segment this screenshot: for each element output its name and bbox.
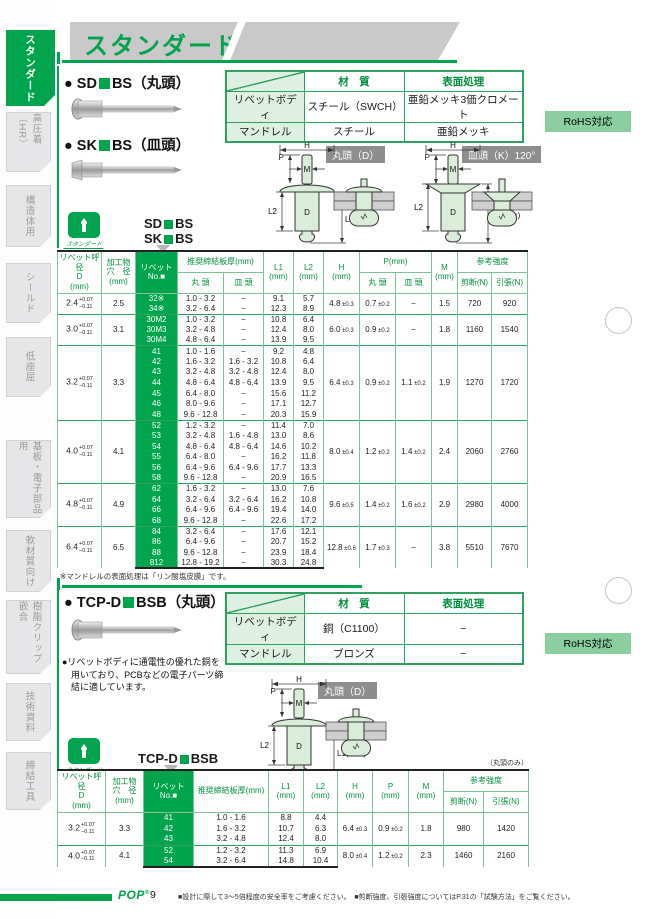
material-table-2: 材 質 表面処理 リベットボディ 銅（C1100） − マンドレル ブロンズ − [225, 592, 524, 665]
surface-col-header: 表面処理 [404, 593, 523, 613]
rivet-series-callout: SDBS SKBS [144, 217, 193, 247]
svg-text:D: D [450, 208, 456, 217]
page-title: スタンダード [84, 26, 240, 61]
spec-row: 6.4+0.07−0.116.5843.2 - 6.4−17.612.112.8… [58, 526, 528, 537]
rivet-photo-sd [68, 97, 186, 121]
svg-text:L2: L2 [414, 203, 423, 212]
rohs-badge: RoHS対応 [545, 111, 631, 132]
svg-text:D: D [296, 742, 302, 751]
rohs-badge: RoHS対応 [545, 633, 631, 654]
mandrel-note: ※マンドレルの表面処理は「リン酸塩皮膜」です。 [60, 571, 231, 582]
spec-row: 3.2+0.07−0.113.3411.0 - 1.68.84.46.4 ±0.… [58, 812, 529, 823]
footer-bar [0, 894, 112, 901]
svg-text:M: M [304, 165, 311, 174]
product-title-sd-pre: ● SD [64, 76, 97, 92]
svg-text:M: M [450, 165, 457, 174]
section1-rule [62, 60, 457, 63]
section1-vline [57, 66, 59, 248]
size-placeholder-square [164, 220, 173, 229]
svg-text:M: M [296, 699, 303, 708]
surface-col-header: 表面処理 [404, 71, 523, 91]
rivet-photo-sk [68, 158, 186, 182]
round-only-note: （丸頭のみ） [440, 758, 528, 768]
catalog-page: スタンダード高圧着（HR）構造体用シールド低座屈基板・電子部品用軟材質向け樹脂ク… [0, 0, 650, 919]
standard-stamp: スタンダード [64, 212, 104, 249]
spec-row: 4.8+0.07−0.114.9621.6 - 3.2−13.07.69.6 ±… [58, 484, 528, 495]
product-title-sd-post: BS（丸頭） [112, 76, 190, 92]
footer-notes: ■設計に際して3～5倍程度の安全率をご考慮ください。 ■剪断強度、引張強度につい… [178, 892, 575, 902]
svg-text:H: H [304, 142, 310, 150]
svg-text:P: P [425, 153, 430, 162]
sidebar-tab-2[interactable]: 構造体用 [6, 185, 51, 247]
svg-text:H: H [450, 142, 456, 150]
material-row: リベットボディ 銅（C1100） − [226, 613, 523, 644]
size-placeholder-square [180, 755, 189, 764]
spec-row: 3.0+0.07−0.113.130M21.0 - 3.2−10.86.46.0… [58, 314, 528, 325]
diagonal-cell [226, 593, 304, 613]
svg-text:L2: L2 [268, 207, 277, 216]
svg-text:L2: L2 [260, 741, 269, 750]
svg-text:D: D [304, 208, 310, 217]
sidebar-tab-8[interactable]: 技術資料 [6, 683, 51, 741]
diagonal-cell [226, 71, 304, 91]
product-title-sk-post: BS（皿頭） [112, 138, 190, 154]
spec-row: 2.4+0.07−0.112.532※1.0 - 3.2−9.15.74.8 ±… [58, 293, 528, 304]
rule-cap [57, 52, 60, 64]
installed-rivet-round [332, 174, 396, 232]
punch-hole [605, 577, 632, 604]
sidebar-tab-5[interactable]: 基板・電子部品用 [6, 440, 51, 518]
table-header-row: リベット呼径D(mm)加工物穴 径(mm)リベットNo.■推奨締結板厚(mm)L… [58, 251, 528, 272]
sidebar-tab-9[interactable]: 締結工具 [6, 752, 51, 810]
product-title-sk-pre: ● SK [64, 138, 97, 154]
page-number: 9 [150, 889, 156, 901]
svg-text:P: P [271, 687, 276, 696]
size-placeholder-square [164, 235, 173, 244]
sidebar-tab-3[interactable]: シールド [6, 263, 51, 323]
svg-text:H: H [296, 676, 302, 684]
spec-row: 3.2+0.07−0.113.3411.0 - 1.6−9.24.86.4 ±0… [58, 346, 528, 357]
standard-stamp-icon [68, 738, 100, 764]
installed-rivet-flat [470, 174, 534, 232]
material-col-header: 材 質 [304, 71, 404, 91]
product-title-sd: ● SDBS（丸頭） [64, 72, 190, 93]
sidebar-tab-7[interactable]: 樹脂クリップ嵌合 [6, 600, 51, 674]
sidebar: スタンダード高圧着（HR）構造体用シールド低座屈基板・電子部品用軟材質向け樹脂ク… [0, 0, 57, 919]
rivet-photo-tcp [68, 618, 186, 642]
standard-stamp-icon [68, 212, 100, 238]
sidebar-tab-0[interactable]: スタンダード [6, 30, 55, 106]
punch-hole [605, 307, 632, 334]
spec-row: 4.0+0.07−0.114.1521.2 - 3.211.36.98.0 ±0… [58, 845, 529, 856]
header-banner: スタンダード [70, 22, 460, 60]
svg-text:P: P [279, 153, 284, 162]
material-row: マンドレル ブロンズ − [226, 644, 523, 664]
sidebar-tab-4[interactable]: 低座屈 [6, 337, 51, 397]
product-description: ●リベットボディに通電性の優れた銅を 用いており、PCBなどの電子パーツ締 結に… [62, 656, 252, 694]
section2-vline [57, 590, 59, 780]
material-row: マンドレル スチール 亜鉛メッキ [226, 122, 523, 142]
spec-table-1: リベット呼径D(mm)加工物穴 径(mm)リベットNo.■推奨締結板厚(mm)L… [57, 250, 528, 569]
size-placeholder-square [99, 140, 110, 151]
rule-cap [57, 578, 60, 590]
product-title-tcp: ● TCP-DBSB（丸頭） [64, 591, 225, 612]
product-title-sk: ● SKBS（皿頭） [64, 134, 190, 155]
material-row: リベットボディ スチール（SWCH） 亜鉛メッキ3価クロメート [226, 91, 523, 122]
table-header-row: リベット呼径D(mm)加工物穴 径(mm)リベットNo.■推奨締結板厚(mm)L… [58, 770, 529, 791]
pop-logo: POP® [118, 888, 150, 902]
material-col-header: 材 質 [304, 593, 404, 613]
installed-rivet-round-tcp [324, 704, 388, 762]
section2-rule [62, 585, 362, 588]
spec-table-2: リベット呼径D(mm)加工物穴 径(mm)リベットNo.■推奨締結板厚(mm)L… [57, 769, 529, 868]
spec-row: 4.0+0.07−0.114.1521.2 - 3.2−11.47.08.0 ±… [58, 420, 528, 431]
size-placeholder-square [123, 597, 134, 608]
sidebar-tab-6[interactable]: 軟材質向け [6, 530, 51, 592]
rivet-series-callout-tcp: TCP-DBSB [138, 752, 218, 767]
sidebar-tab-1[interactable]: 高圧着（HR） [6, 112, 51, 172]
material-table-1: 材 質 表面処理 リベットボディ スチール（SWCH） 亜鉛メッキ3価クロメート… [225, 70, 524, 143]
size-placeholder-square [99, 78, 110, 89]
